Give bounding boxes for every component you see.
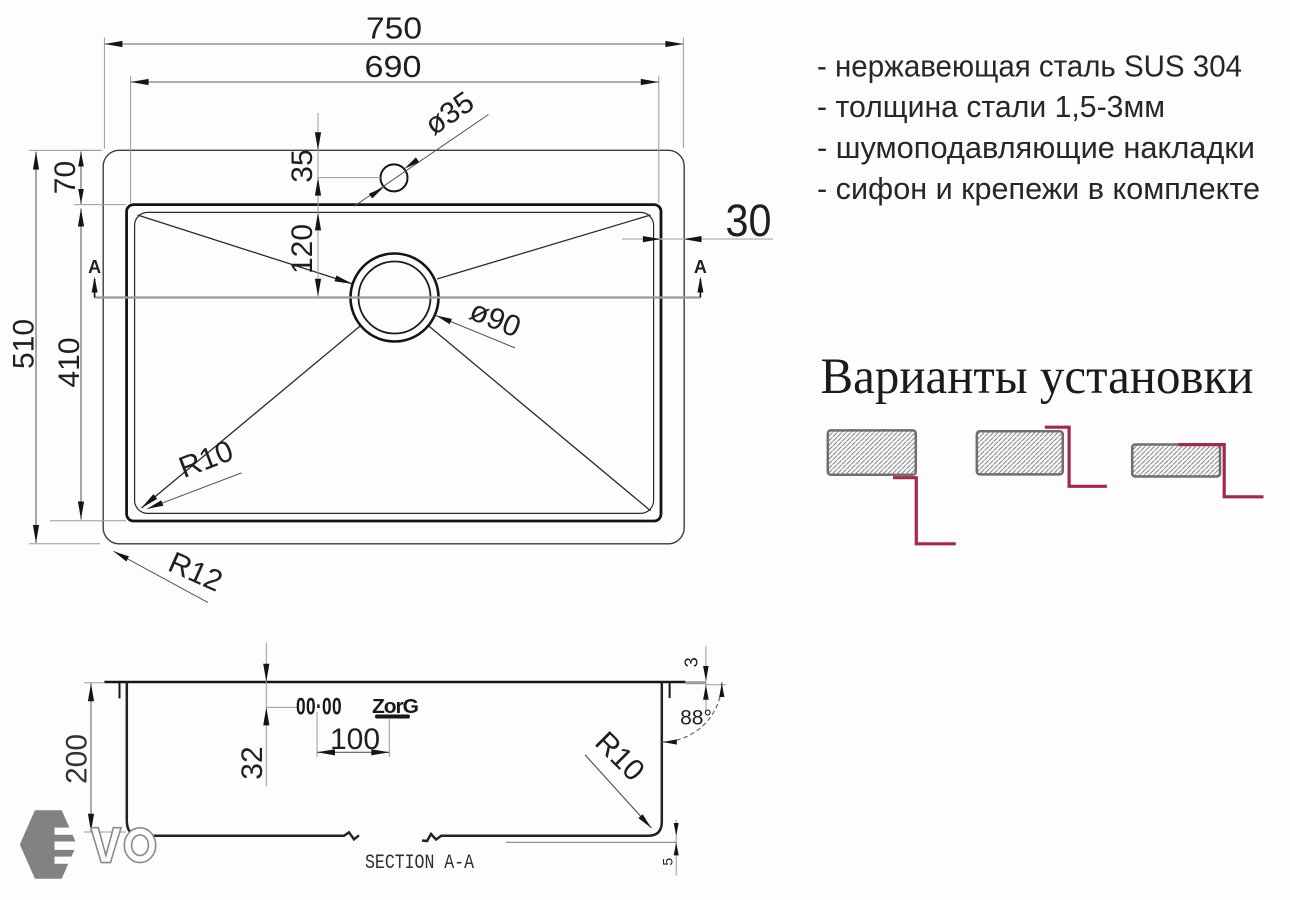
svg-text:70: 70: [49, 161, 82, 194]
svg-text:32: 32: [236, 746, 269, 779]
svg-text:00·00: 00·00: [296, 694, 342, 720]
svg-text:3: 3: [681, 657, 702, 667]
svg-text:510: 510: [8, 319, 41, 369]
svg-text:SECTION A-A: SECTION A-A: [365, 852, 475, 875]
svg-text:A: A: [88, 257, 101, 277]
svg-text:R10: R10: [175, 434, 238, 484]
svg-text:200: 200: [61, 734, 94, 784]
svg-text:- шумоподавляющие накладки: - шумоподавляющие накладки: [817, 130, 1255, 165]
svg-text:R10: R10: [588, 725, 650, 787]
svg-text:100: 100: [330, 723, 380, 756]
svg-text:120: 120: [286, 224, 319, 274]
svg-text:410: 410: [53, 337, 86, 387]
svg-text:88°: 88°: [680, 707, 712, 730]
svg-text:750: 750: [366, 11, 422, 46]
svg-text:- нержавеющая сталь SUS 304: - нержавеющая сталь SUS 304: [817, 49, 1242, 84]
svg-text:690: 690: [365, 49, 422, 84]
svg-text:Варианты установки: Варианты установки: [821, 349, 1254, 405]
svg-text:35: 35: [286, 149, 319, 182]
svg-text:ø90: ø90: [465, 294, 525, 344]
svg-text:- сифон и крепежи в комплекте: - сифон и крепежи в комплекте: [817, 171, 1260, 206]
svg-text:30: 30: [726, 195, 772, 246]
svg-text:A: A: [694, 257, 707, 277]
svg-text:- толщина стали 1,5-3мм: - толщина стали 1,5-3мм: [817, 89, 1165, 124]
svg-text:R12: R12: [164, 546, 228, 599]
svg-text:5: 5: [660, 858, 676, 866]
svg-text:ø35: ø35: [419, 85, 480, 141]
